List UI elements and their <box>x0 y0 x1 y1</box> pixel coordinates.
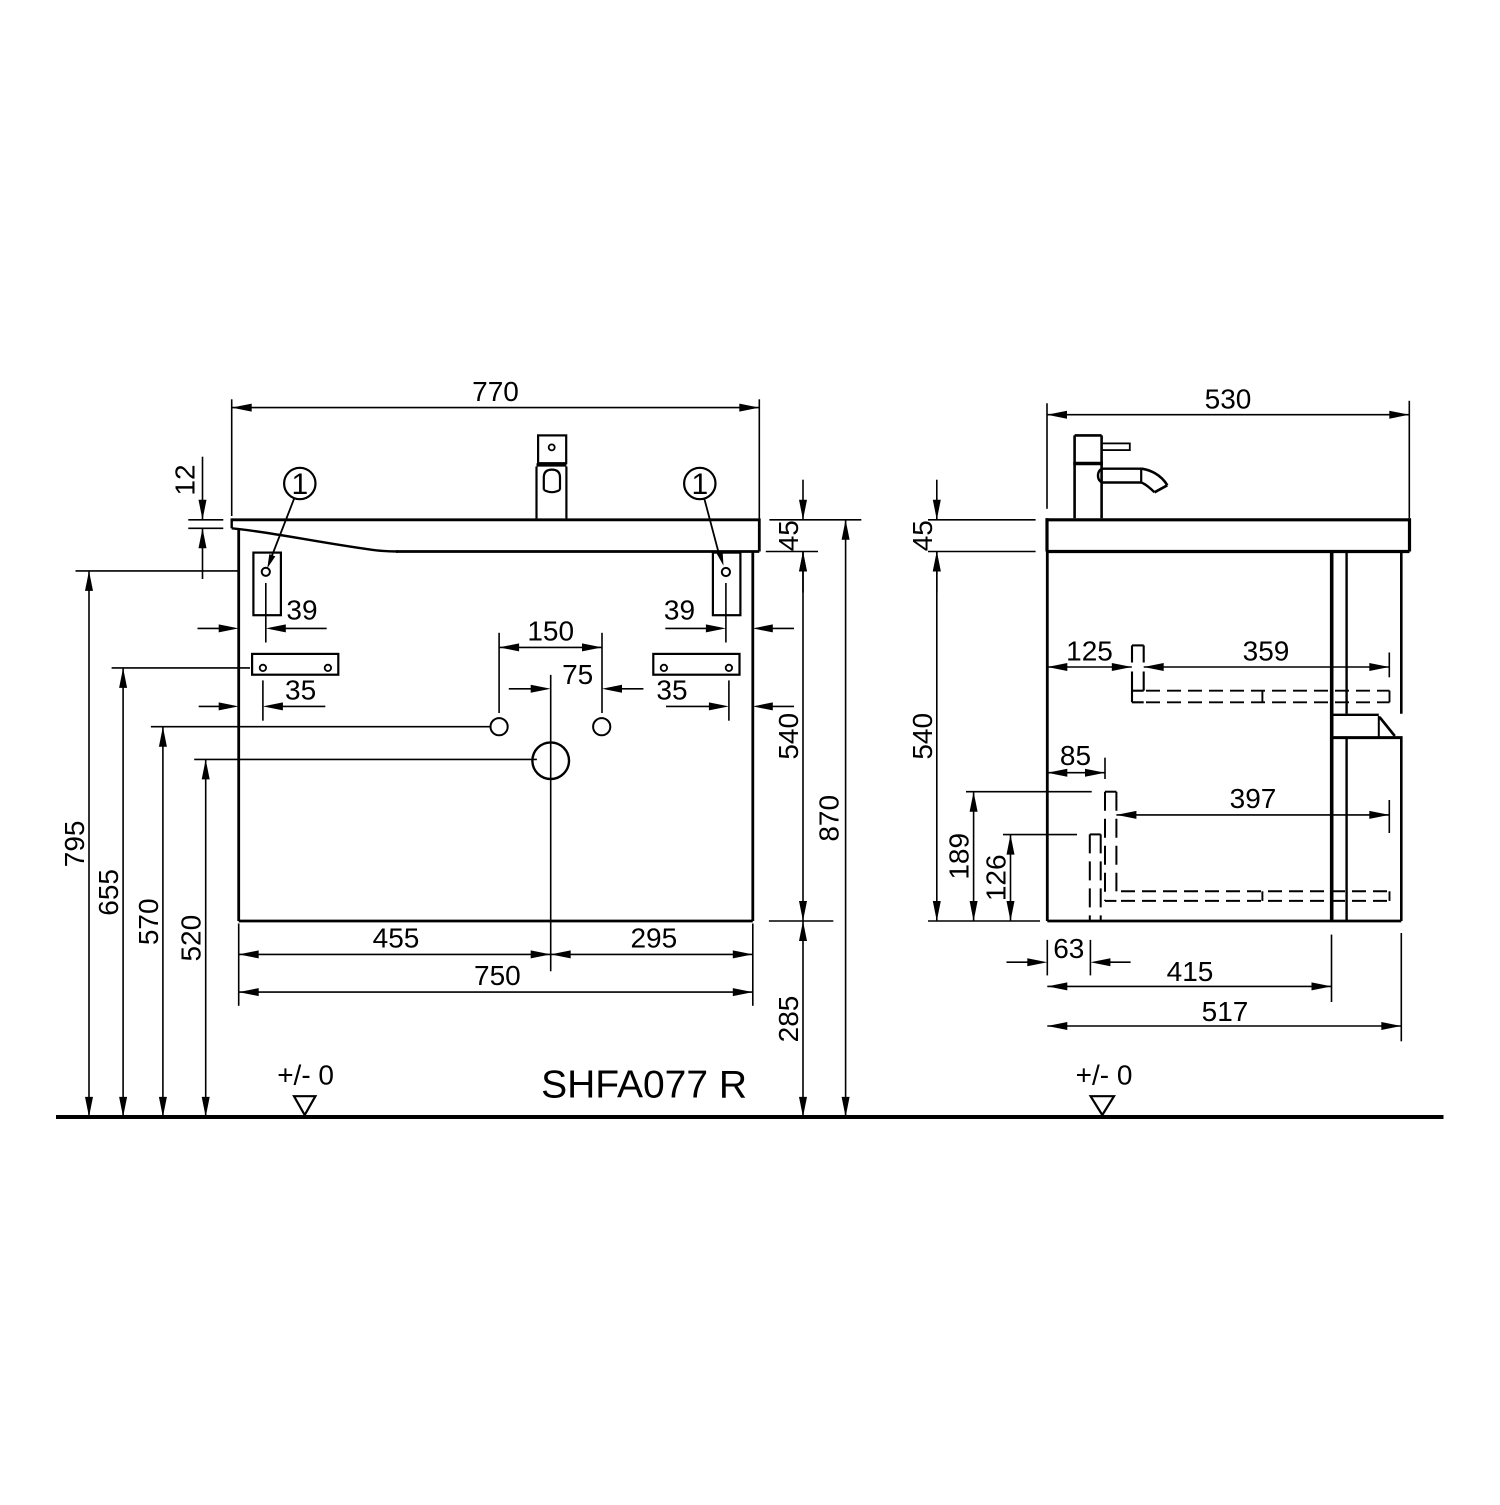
svg-text:1: 1 <box>691 468 708 501</box>
svg-text:520: 520 <box>176 915 207 962</box>
svg-text:1: 1 <box>291 468 308 501</box>
svg-text:295: 295 <box>630 922 677 953</box>
svg-text:+/- 0: +/- 0 <box>1076 1059 1133 1090</box>
svg-text:530: 530 <box>1205 383 1252 414</box>
svg-text:39: 39 <box>286 594 317 625</box>
svg-text:+/- 0: +/- 0 <box>277 1059 334 1090</box>
svg-text:570: 570 <box>133 898 164 945</box>
svg-text:12: 12 <box>170 464 201 495</box>
svg-text:359: 359 <box>1243 635 1290 666</box>
svg-text:SHFA077 R: SHFA077 R <box>541 1063 747 1106</box>
svg-text:870: 870 <box>814 795 845 842</box>
svg-text:45: 45 <box>907 520 938 551</box>
svg-text:35: 35 <box>285 674 316 705</box>
svg-text:125: 125 <box>1066 635 1113 666</box>
svg-text:189: 189 <box>944 833 975 880</box>
svg-text:75: 75 <box>562 659 593 690</box>
svg-text:750: 750 <box>474 960 521 991</box>
svg-text:63: 63 <box>1053 933 1084 964</box>
svg-text:795: 795 <box>59 821 90 868</box>
svg-text:397: 397 <box>1230 783 1277 814</box>
svg-text:35: 35 <box>656 674 687 705</box>
svg-text:540: 540 <box>773 713 804 760</box>
svg-text:150: 150 <box>527 615 574 646</box>
svg-text:285: 285 <box>773 996 804 1043</box>
svg-text:85: 85 <box>1060 740 1091 771</box>
svg-text:126: 126 <box>981 854 1012 901</box>
svg-text:517: 517 <box>1202 996 1249 1027</box>
svg-text:39: 39 <box>664 594 695 625</box>
svg-text:655: 655 <box>93 869 124 916</box>
svg-text:540: 540 <box>907 713 938 760</box>
svg-text:770: 770 <box>472 376 519 407</box>
svg-text:455: 455 <box>373 922 420 953</box>
svg-text:45: 45 <box>773 520 804 551</box>
svg-text:415: 415 <box>1167 956 1214 987</box>
